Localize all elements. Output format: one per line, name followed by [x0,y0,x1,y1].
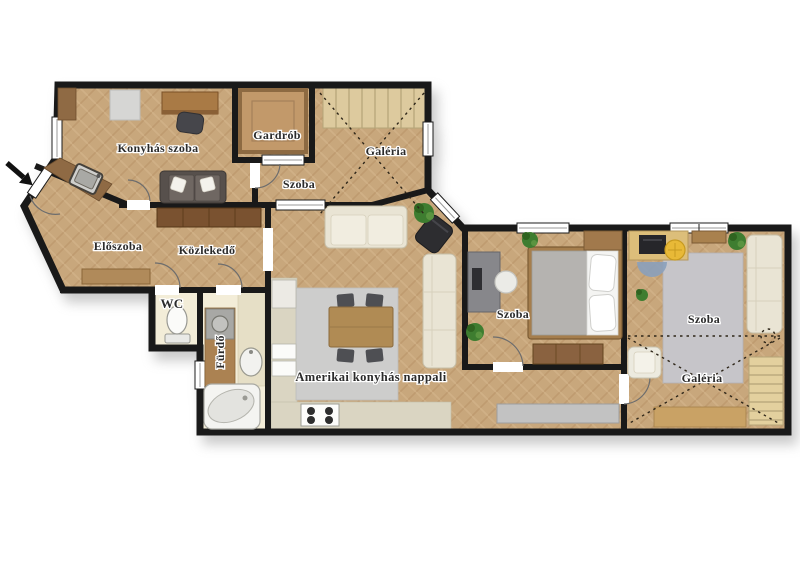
fridge [272,280,296,308]
sofa [160,171,226,203]
sofa [423,254,456,368]
dining-chair [337,293,355,307]
laptop [472,268,482,290]
label-furdo: Fürdő [213,335,227,369]
door-opening [127,200,150,210]
window [52,117,62,159]
bathroom-sink [240,348,262,376]
door-opening [155,285,179,295]
door-opening [619,374,629,404]
kitchen-unit [272,344,296,359]
sofa [747,235,782,333]
fridge [110,90,140,120]
label-galeria-top: Galéria [366,144,407,158]
label-eloszoba: Előszoba [94,239,142,253]
pillow [200,176,216,192]
label-nappali: Amerikai konyhás nappali [295,370,446,384]
plant-icon [728,232,746,250]
door-opening [250,163,260,188]
door-opening [493,362,523,372]
plant-icon [466,323,484,341]
window [423,122,433,156]
label-galeria-right: Galéria [682,371,723,385]
wardrobe [240,90,306,152]
dining-chair [365,293,383,308]
label-kozlekedo: Közlekedő [179,243,236,257]
shelf [692,231,726,243]
dining-chair [336,348,354,362]
window [276,200,325,210]
label-szoba-middle: Szoba [497,307,529,321]
window [195,361,205,389]
plant-icon [522,232,538,248]
pillow [588,254,616,292]
floor-plan-page: Konyhás szoba Gardrób Galéria Szoba Elős… [0,0,800,565]
washing-machine [206,309,234,339]
toilet-tank [165,334,190,343]
dining-chair [365,348,383,363]
label-wc: WC [161,296,184,311]
stove [301,404,339,426]
stool [665,240,685,260]
wardrobe-room-furniture [240,90,306,152]
armchair [628,347,661,378]
dresser [584,231,622,250]
sofa [325,206,407,248]
gallery-platform [654,407,746,427]
label-konyhas-szoba: Konyhás szoba [118,141,199,155]
stairs-right-gallery [749,357,783,425]
door-opening [216,285,241,295]
floor-plan: Konyhás szoba Gardrób Galéria Szoba Elős… [24,85,788,432]
desk-chair [176,111,205,134]
pillow [589,294,616,332]
window [517,223,569,233]
floor-plan-image: Konyhás szoba Gardrób Galéria Szoba Elős… [0,0,800,565]
kitchen-counter-bottom [271,402,451,429]
tv-bench [497,404,619,423]
plant-icon [414,203,434,223]
passage-opening [263,228,273,271]
bed [528,247,622,339]
bathtub [203,383,260,429]
shoe-cabinet [82,269,150,284]
bench [533,344,603,364]
label-szoba-right: Szoba [688,312,720,326]
desk-chair [495,271,517,293]
kitchen-unit [272,361,296,376]
label-szoba-top: Szoba [283,177,315,191]
kitchen-counter [58,88,76,120]
computer [639,235,666,254]
plant-icon [636,289,648,301]
label-gardrob: Gardrób [253,128,300,142]
window [262,155,304,165]
